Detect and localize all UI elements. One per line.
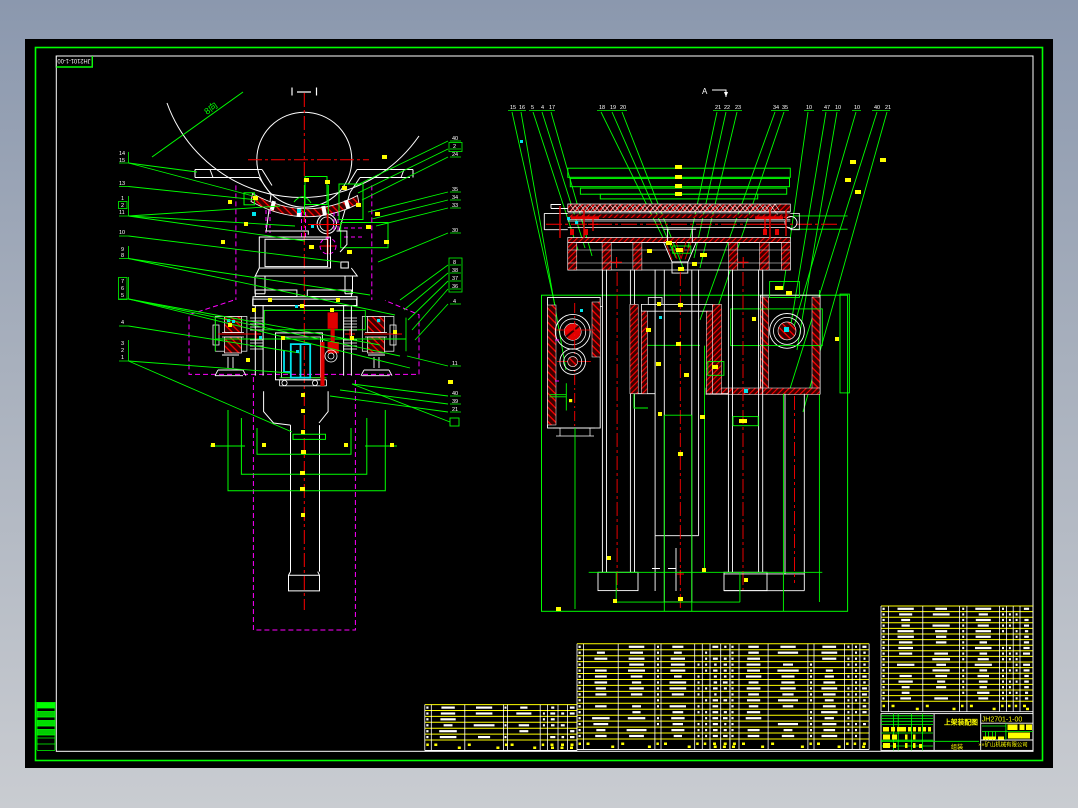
svg-text:10: 10 (119, 230, 125, 236)
svg-text:A: A (702, 87, 708, 96)
svg-text:6: 6 (121, 286, 124, 292)
svg-text:3: 3 (121, 341, 124, 347)
svg-text:组装: 组装 (951, 743, 963, 751)
svg-text:1: 1 (121, 355, 124, 361)
svg-text:4: 4 (121, 320, 124, 326)
svg-text:2: 2 (121, 348, 124, 354)
svg-text:××矿山机械有限公司: ××矿山机械有限公司 (978, 741, 1027, 749)
svg-text:7: 7 (121, 279, 124, 285)
svg-text:JH2101-1-00: JH2101-1-00 (57, 57, 90, 64)
svg-text:上架装配图: 上架装配图 (944, 718, 978, 727)
svg-text:JH2701-1-00: JH2701-1-00 (982, 717, 1023, 724)
svg-text:14: 14 (119, 151, 125, 157)
svg-text:11: 11 (119, 210, 125, 216)
svg-text:5: 5 (121, 293, 124, 299)
